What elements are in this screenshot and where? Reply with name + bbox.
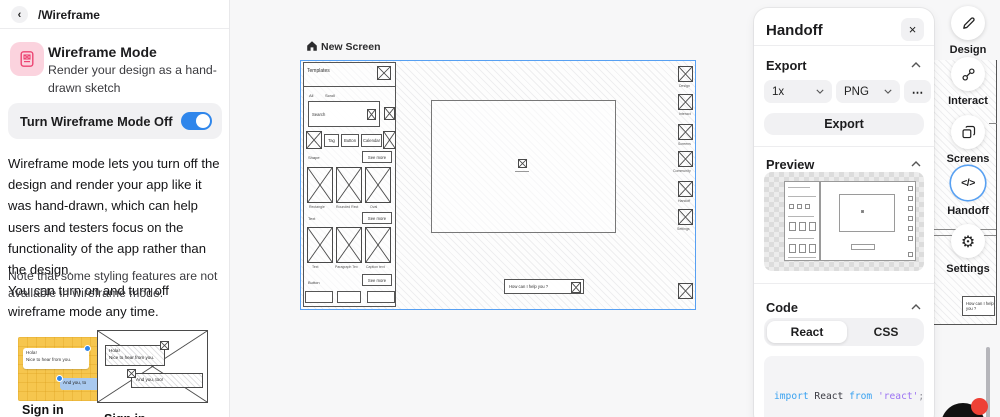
- sketch-caption: Caption text: [366, 265, 385, 269]
- sketch-button-item: [337, 291, 361, 303]
- tab-css[interactable]: CSS: [848, 318, 924, 346]
- code-token: from: [849, 391, 872, 402]
- sketch-nav-box: [678, 151, 693, 167]
- close-icon: ×: [909, 22, 917, 37]
- back-chevron-icon: ‹: [18, 9, 22, 21]
- sketch-nav-box: [678, 181, 693, 197]
- wireframe-toggle-row[interactable]: Turn Wireframe Mode Off: [8, 103, 222, 139]
- preview-mini-rect: [839, 194, 895, 232]
- sketch-caption: Paragraph Tex: [335, 265, 358, 269]
- tab-react[interactable]: React: [767, 321, 847, 343]
- preview-mini-panel: [784, 181, 820, 261]
- sketch-close-box: [377, 66, 391, 80]
- sketch-nav-box: [678, 209, 693, 225]
- chat-bubble-received: Hola! Nice to hear from you.: [23, 348, 89, 369]
- handoff-panel: Handoff × Export 1x PNG ⋯ Export Preview: [754, 8, 934, 417]
- bubble-handle-dot: [84, 345, 91, 352]
- code-token: import: [774, 391, 809, 402]
- sketch-caption: Rectangle: [309, 205, 325, 209]
- sketch-section-text: Text: [308, 216, 315, 221]
- pencil-icon: [961, 16, 976, 31]
- rail-design-button[interactable]: [951, 6, 985, 40]
- ellipsis-icon: ⋯: [912, 85, 924, 99]
- preview-section-label: Preview: [766, 157, 814, 172]
- wireframe-toggle-switch[interactable]: [181, 112, 212, 130]
- export-more-button[interactable]: ⋯: [904, 80, 931, 103]
- sketch-nav-label: Settings: [677, 227, 690, 231]
- sketch-panel-title: Templates: [307, 68, 330, 74]
- sketch-shape-oval: [365, 167, 391, 203]
- wireframe-canvas-screen[interactable]: Templates All Scroll Search Tag Button C…: [300, 60, 696, 310]
- sketch-text-item: [336, 227, 362, 263]
- chevron-up-icon[interactable]: [911, 304, 921, 310]
- sketch-shape-rounded: [336, 167, 362, 203]
- sketch-caption: Oval: [370, 205, 377, 209]
- rail-handoff-label: Handoff: [935, 205, 1000, 217]
- chevron-down-icon: [884, 89, 892, 94]
- sketch-tab-all: All: [309, 93, 313, 98]
- sketch-line: [989, 123, 997, 124]
- sketch-nav-label: Community: [673, 169, 691, 173]
- sketch-box: [383, 131, 396, 149]
- sketch-caption: Text: [312, 265, 318, 269]
- sketch-text-item: [365, 227, 391, 263]
- code-tabs: React CSS: [764, 318, 924, 346]
- rail-interact-label: Interact: [935, 95, 1000, 107]
- wireframe-card-caption: Sign in: [104, 412, 146, 417]
- rail-interact-button[interactable]: [951, 57, 985, 91]
- wire-handle-box: [160, 341, 169, 350]
- divider: [754, 283, 934, 284]
- wireframe-mode-icon: [10, 42, 44, 76]
- divider: [304, 86, 395, 87]
- code-section-label: Code: [766, 300, 798, 315]
- wire-handle-box: [127, 369, 136, 378]
- export-section-label: Export: [766, 58, 807, 73]
- wire-bubble-sent: And you, too!: [131, 373, 203, 388]
- sketch-image-icon: [518, 159, 527, 168]
- back-button[interactable]: ‹: [11, 6, 28, 23]
- sketch-chip-tag: Tag: [324, 134, 339, 147]
- sidebar-header: ‹ /Wireframe: [0, 0, 229, 29]
- export-format-value: PNG: [844, 86, 869, 98]
- sketch-box: [306, 131, 322, 149]
- bubble-line-1: Hola!: [26, 350, 86, 357]
- sketch-assistant-input-2: How can I help you ?: [962, 296, 995, 316]
- sketch-nav-label: Handoff: [678, 199, 690, 203]
- panel-title: Handoff: [766, 22, 823, 39]
- sketch-nav-label: Interact: [679, 112, 691, 116]
- bubble-handle-dot: [56, 375, 63, 382]
- toggle-label: Turn Wireframe Mode Off: [20, 114, 173, 129]
- divider: [754, 45, 934, 46]
- sketch-button-item: [305, 291, 333, 303]
- sketch-chip-calendar: Calendar: [361, 134, 382, 147]
- feature-description: Render your design as a hand-drawn sketc…: [48, 62, 218, 98]
- screen-name-label[interactable]: New Screen: [321, 41, 381, 53]
- code-snippet[interactable]: import React from 'react'; const styles …: [764, 356, 924, 417]
- sketch-assistant-text: How can I help you ?: [509, 284, 548, 289]
- rail-screens-button[interactable]: [951, 115, 985, 149]
- sketch-search-placeholder: Search: [312, 112, 325, 117]
- close-panel-button[interactable]: ×: [901, 18, 924, 41]
- sketch-nav-box: [678, 283, 693, 299]
- home-icon[interactable]: [306, 40, 318, 52]
- sketch-section-button: Button: [308, 280, 320, 285]
- rail-design-label: Design: [935, 44, 1000, 56]
- sketch-shape-rectangle: [307, 167, 333, 203]
- sketch-nav-label: Design: [679, 84, 690, 88]
- sketch-nav-box: [678, 94, 693, 110]
- wire-bubble-line-1: Hola!: [109, 348, 161, 355]
- chevron-up-icon[interactable]: [911, 62, 921, 68]
- sketch-image-caption-line: [515, 171, 529, 172]
- export-button-label: Export: [824, 117, 864, 131]
- sketch-section-shape: Shape: [308, 155, 320, 160]
- rail-settings-label: Settings: [935, 263, 1000, 275]
- sketch-assistant-text-2: How can I help you ?: [966, 301, 994, 311]
- sketch-see-more-button: See more: [362, 212, 392, 224]
- interact-nodes-icon: [961, 67, 976, 82]
- export-button[interactable]: Export: [764, 113, 924, 135]
- chevron-up-icon[interactable]: [911, 161, 921, 167]
- sketch-see-more-button: See more: [362, 151, 392, 163]
- export-preview-image: [764, 172, 924, 271]
- page-title: /Wireframe: [38, 8, 100, 22]
- sketch-card-icon: [18, 50, 36, 68]
- chevron-down-icon: [816, 89, 824, 94]
- tab-react-label: React: [791, 325, 824, 339]
- note-text: Note that some styling features are not …: [8, 268, 226, 302]
- styled-card-caption: Sign in: [22, 403, 64, 417]
- rail-screens-label: Screens: [935, 153, 1000, 165]
- notification-badge: [971, 398, 988, 415]
- sketch-send-box: [571, 282, 581, 293]
- preview-mini-input: [851, 244, 875, 250]
- sketch-chip-button: Button: [341, 134, 359, 147]
- wireframe-screen-thumbnail[interactable]: Hola! Nice to hear from you. And you, to…: [97, 330, 208, 403]
- sketch-button-item: [367, 291, 395, 303]
- toggle-knob: [196, 114, 210, 128]
- sketch-search-field: Search: [308, 101, 380, 127]
- wire-bubble-received: Hola! Nice to hear from you.: [105, 345, 165, 366]
- preview-mini-screen: [820, 181, 916, 261]
- sketch-nav-box: [678, 66, 693, 82]
- sketch-tab-scroll: Scroll: [325, 93, 335, 98]
- wire-bubble-line-2: Nice to hear from you.: [109, 355, 161, 362]
- sketch-search-icon-box: [367, 109, 376, 120]
- code-token: 'react': [872, 391, 918, 402]
- sketch-image-placeholder: [431, 100, 616, 233]
- feature-title: Wireframe Mode: [48, 44, 157, 60]
- wireframe-settings-sidebar: ‹ /Wireframe Wireframe Mode Render your …: [0, 0, 230, 417]
- sketch-see-more-button: See more: [362, 274, 392, 286]
- code-token: React: [809, 391, 849, 402]
- code-brackets-icon: </>: [961, 177, 975, 189]
- sketch-caption: Rounded Rect: [336, 205, 358, 209]
- divider: [754, 146, 934, 147]
- sketch-nav-label: Screens: [678, 142, 691, 146]
- sketch-assistant-input: How can I help you ?: [504, 279, 584, 294]
- export-scale-value: 1x: [772, 86, 784, 98]
- screens-stack-icon: [961, 125, 976, 140]
- bubble-line-2: Nice to hear from you.: [26, 357, 86, 364]
- gear-icon: ⚙: [961, 232, 975, 251]
- rail-handoff-button[interactable]: </>: [951, 166, 985, 200]
- paragraph-line-1: Wireframe mode lets you turn off the des…: [8, 153, 224, 280]
- sketch-template-panel: Templates All Scroll Search Tag Button C…: [303, 62, 396, 307]
- sketch-box: [384, 107, 395, 120]
- sketch-nav-box: [678, 124, 693, 140]
- export-scale-dropdown[interactable]: 1x: [764, 80, 832, 103]
- export-format-dropdown[interactable]: PNG: [836, 80, 900, 103]
- rail-settings-button[interactable]: ⚙: [951, 224, 985, 258]
- code-token: ;: [918, 391, 924, 402]
- styled-screen-thumbnail[interactable]: Hola! Nice to hear from you. And you, to: [18, 337, 98, 401]
- tab-css-label: CSS: [874, 325, 899, 339]
- sketch-text-item: [307, 227, 333, 263]
